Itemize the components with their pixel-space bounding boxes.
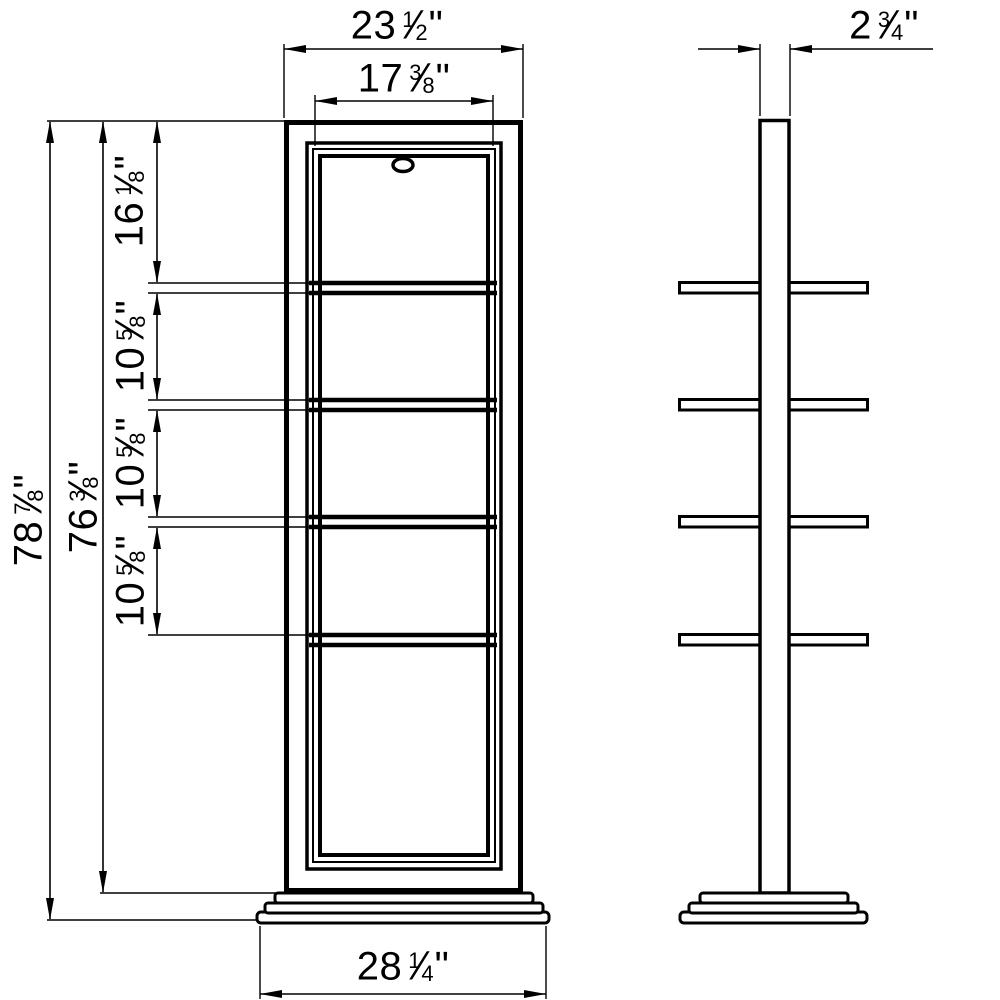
technical-drawing-canvas: 231⁄2" 173⁄8" 23⁄4" 281⁄4" 787⁄8" 763⁄8"… <box>0 0 1000 1000</box>
dim-unit: " <box>62 461 106 476</box>
arrowhead <box>99 871 107 893</box>
dimension-lines <box>50 49 933 994</box>
fraction-denominator: 8 <box>125 550 150 562</box>
base-step-top <box>275 893 533 903</box>
dim-fraction: 5⁄8 <box>109 315 153 340</box>
side-base <box>680 893 867 923</box>
dim-unit: " <box>436 57 451 101</box>
dim-fraction: 3⁄8 <box>62 476 106 501</box>
dim-whole: 28 <box>357 945 403 989</box>
dim-unit: " <box>904 4 919 48</box>
arrowhead <box>260 990 282 998</box>
dim-label-base-width: 281⁄4" <box>357 946 450 987</box>
dim-whole: 23 <box>351 4 397 48</box>
arrowhead <box>524 990 546 998</box>
dim-label-overall-height: 787⁄8" <box>8 474 49 567</box>
arrowhead <box>153 495 161 517</box>
arrowhead <box>790 45 812 53</box>
dim-whole: 76 <box>62 508 106 554</box>
dim-fraction: 7⁄8 <box>7 489 51 514</box>
dim-whole: 2 <box>849 4 872 48</box>
front-base <box>257 893 549 923</box>
dim-label-body-height: 763⁄8" <box>63 461 104 554</box>
dim-unit: " <box>7 474 51 489</box>
arrowhead <box>284 45 306 53</box>
fraction-denominator: 8 <box>124 170 149 182</box>
dim-whole: 10 <box>109 582 153 628</box>
dim-label-top-width: 231⁄2" <box>351 5 444 46</box>
door-panel <box>320 156 488 855</box>
dim-fraction: 3⁄8 <box>409 57 434 101</box>
arrowhead <box>153 261 161 283</box>
side-view <box>680 121 868 924</box>
arrowhead <box>99 121 107 143</box>
fraction-denominator: 8 <box>78 476 103 488</box>
dim-unit: " <box>109 535 153 550</box>
front-view <box>148 123 549 924</box>
arrowhead <box>153 121 161 143</box>
arrowhead <box>501 45 523 53</box>
arrowhead <box>46 898 54 920</box>
dim-whole: 16 <box>108 202 152 248</box>
fraction-denominator: 8 <box>125 432 150 444</box>
dim-unit: " <box>108 155 152 170</box>
door-frame-outer <box>307 143 501 869</box>
keyhole <box>393 159 413 172</box>
arrowhead <box>153 613 161 635</box>
dim-label-side-depth: 23⁄4" <box>849 5 919 46</box>
dim-unit: " <box>109 417 153 432</box>
arrowhead <box>471 97 493 105</box>
dim-whole: 10 <box>109 347 153 393</box>
base-step-top <box>700 893 848 903</box>
dim-unit: " <box>109 300 153 315</box>
dim-whole: 17 <box>358 57 404 101</box>
door-frame-middle <box>313 149 495 862</box>
dim-label-inner-width: 173⁄8" <box>358 58 451 99</box>
dim-unit: " <box>429 4 444 48</box>
front-shelves <box>309 283 497 645</box>
dim-label-shelf-spacing-2: 105⁄8" <box>110 417 151 510</box>
dim-fraction: 3⁄4 <box>878 4 903 48</box>
arrowhead <box>153 378 161 400</box>
side-post <box>760 121 789 894</box>
dim-label-shelf-spacing-1: 105⁄8" <box>110 300 151 393</box>
arrowhead <box>153 410 161 432</box>
dim-label-shelf-spacing-3: 105⁄8" <box>110 535 151 628</box>
dim-fraction: 5⁄8 <box>109 550 153 575</box>
fraction-denominator: 4 <box>891 20 903 45</box>
dim-whole: 78 <box>7 521 51 567</box>
fraction-denominator: 8 <box>23 489 48 501</box>
dim-fraction: 1⁄4 <box>408 945 433 989</box>
dim-whole: 10 <box>109 464 153 510</box>
fraction-denominator: 2 <box>415 20 427 45</box>
arrowhead <box>153 527 161 549</box>
dim-label-top-section-height: 161⁄8" <box>109 155 150 248</box>
fraction-denominator: 8 <box>422 73 434 98</box>
dim-unit: " <box>435 945 450 989</box>
dim-fraction: 1⁄8 <box>108 170 152 195</box>
fraction-denominator: 4 <box>421 961 433 986</box>
arrowhead <box>315 97 337 105</box>
arrowhead <box>153 293 161 315</box>
dim-fraction: 5⁄8 <box>109 432 153 457</box>
arrowhead <box>738 45 760 53</box>
dim-fraction: 1⁄2 <box>402 4 427 48</box>
fraction-denominator: 8 <box>125 315 150 327</box>
arrowhead <box>46 121 54 143</box>
